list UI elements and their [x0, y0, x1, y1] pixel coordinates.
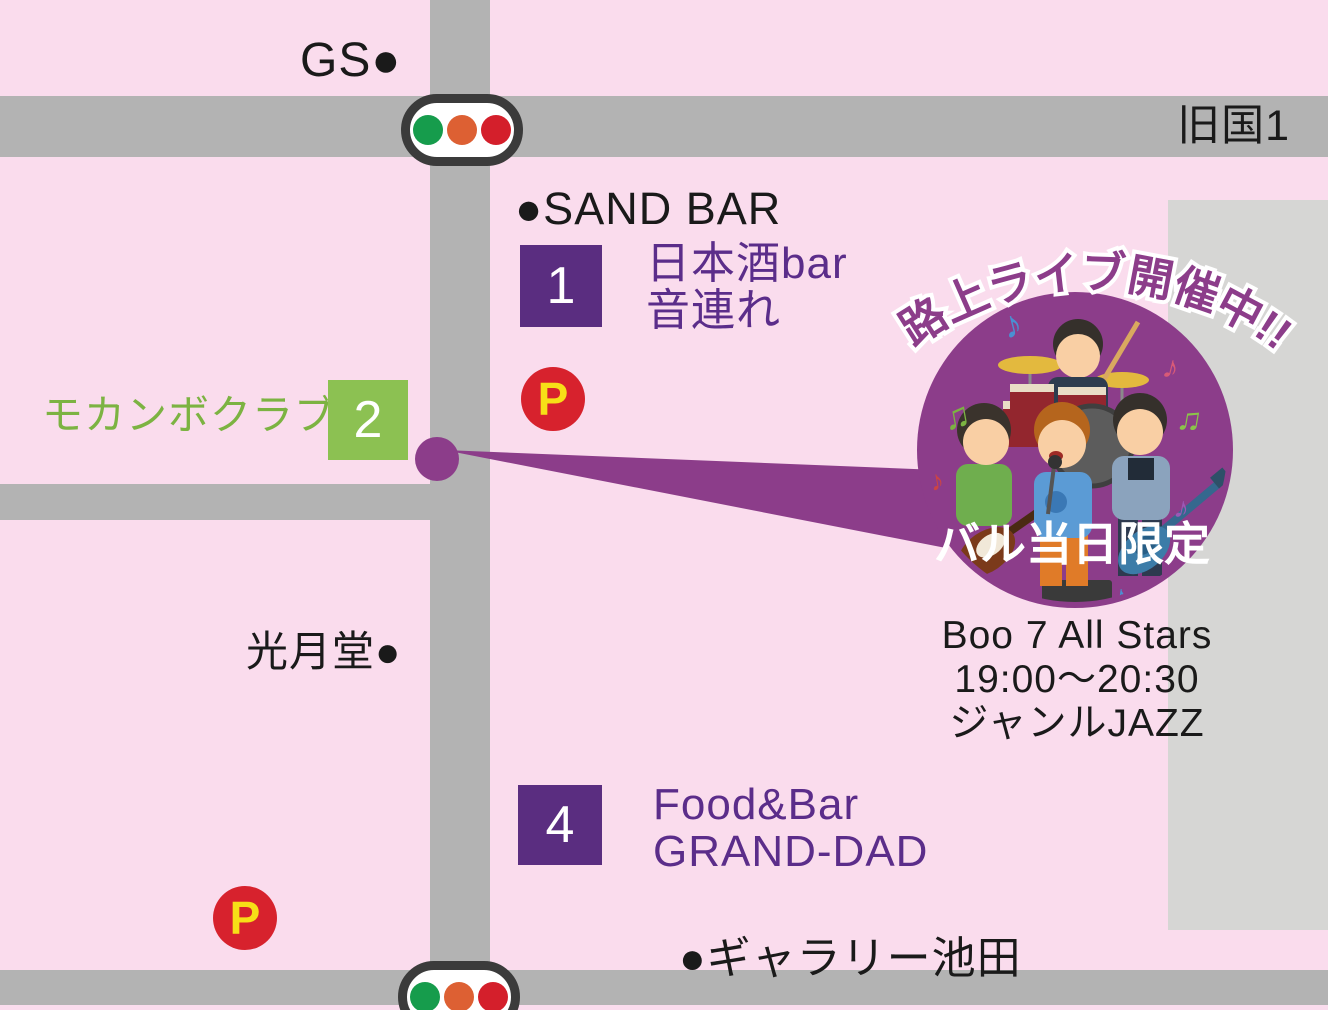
- sand-bar-label: ●SAND BAR: [515, 183, 781, 235]
- bassist-leg: [1142, 518, 1162, 576]
- vocalist-leg: [1066, 534, 1088, 586]
- event-band-name: Boo 7 All Stars: [927, 614, 1227, 658]
- vocalist-body: [1034, 472, 1092, 538]
- bassist-body: [1112, 456, 1170, 520]
- gallery-ikeda-label: ●ギャラリー池田: [679, 922, 1022, 986]
- vocalist-mouth: [1049, 451, 1063, 461]
- drum-tom: [1058, 389, 1106, 431]
- callout-pointer: [444, 450, 988, 548]
- cymbal-icon: [1095, 372, 1149, 388]
- venue-2-number-badge: 2: [328, 380, 408, 460]
- stage-monitor: [1042, 580, 1112, 606]
- venue-4-name-line1: Food&Bar: [653, 781, 928, 828]
- traffic-light-green: [413, 115, 443, 145]
- road-side-street-left: [0, 484, 430, 520]
- traffic-light-red: [478, 982, 508, 1010]
- drum-rim: [1010, 384, 1054, 392]
- cymbal-icon: [998, 356, 1062, 374]
- drumstick-icon: [1100, 322, 1138, 386]
- bassist-shirt: [1128, 458, 1154, 480]
- venue-4-name-line2: GRAND-DAD: [653, 828, 928, 875]
- venue-4-name: Food&Bar GRAND-DAD: [653, 781, 928, 875]
- parking-icon: P: [213, 886, 277, 950]
- traffic-light-green: [410, 982, 440, 1010]
- drum-rim: [1003, 401, 1047, 409]
- event-time: 19:00〜20:30: [927, 658, 1227, 702]
- traffic-light-red: [481, 115, 511, 145]
- bassist-leg: [1118, 518, 1138, 576]
- event-info: Boo 7 All Stars 19:00〜20:30 ジャンルJAZZ: [927, 614, 1227, 746]
- venue-4-number-badge: 4: [518, 785, 602, 865]
- bassist-hair: [1113, 393, 1167, 447]
- guitarist-hair: [957, 403, 1011, 457]
- guitarist-face: [963, 419, 1009, 465]
- bass-drum: [1052, 406, 1132, 486]
- traffic-light-icon: [401, 94, 523, 166]
- venue-1-name-line1: 日本酒bar: [646, 240, 848, 287]
- road-bottom-street: [0, 970, 1328, 1005]
- drummer-face: [1056, 334, 1100, 378]
- drummer-hair: [1053, 319, 1103, 369]
- venue-1-name-line2: 音連れ: [646, 287, 848, 334]
- traffic-light-orange: [447, 115, 477, 145]
- drummer-body: [1048, 377, 1108, 417]
- guitarist-body: [956, 464, 1012, 526]
- drum-rim: [1058, 387, 1106, 395]
- traffic-light-icon: [398, 961, 520, 1010]
- music-note-icon: ♪: [998, 303, 1027, 348]
- traffic-light-orange: [444, 982, 474, 1010]
- music-note-icon: ♫: [940, 393, 974, 438]
- vocalist-hair: [1034, 402, 1090, 458]
- drum-tom: [1003, 403, 1047, 447]
- bassist-face: [1117, 409, 1163, 455]
- drum-tom: [1010, 386, 1054, 426]
- vocalist-face: [1038, 420, 1086, 468]
- building-block: [1168, 200, 1328, 930]
- music-note-icon: ♪: [1110, 579, 1129, 614]
- music-note-icon: ♪: [927, 464, 946, 497]
- event-genre: ジャンルJAZZ: [927, 702, 1227, 746]
- electric-guitar-icon: [949, 472, 1088, 586]
- venue-2-name: モカンボクラブ: [42, 392, 336, 439]
- vocalist-shirt-print: [1045, 491, 1067, 513]
- parking-icon: P: [521, 367, 585, 431]
- event-map: GS● 旧国1 ●SAND BAR 光月堂● ●ギャラリー池田 1 日本酒bar…: [0, 0, 1328, 1010]
- venue-1-number-badge: 1: [520, 245, 602, 327]
- microphone-stand: [1048, 466, 1054, 514]
- microphone-icon: [1048, 455, 1062, 469]
- kogetsudo-label: 光月堂●: [246, 618, 401, 679]
- vocalist-leg: [1040, 534, 1062, 586]
- venue-1-name: 日本酒bar 音連れ: [646, 240, 848, 334]
- gas-station-label: GS●: [300, 33, 401, 88]
- route-label: 旧国1: [0, 96, 1290, 157]
